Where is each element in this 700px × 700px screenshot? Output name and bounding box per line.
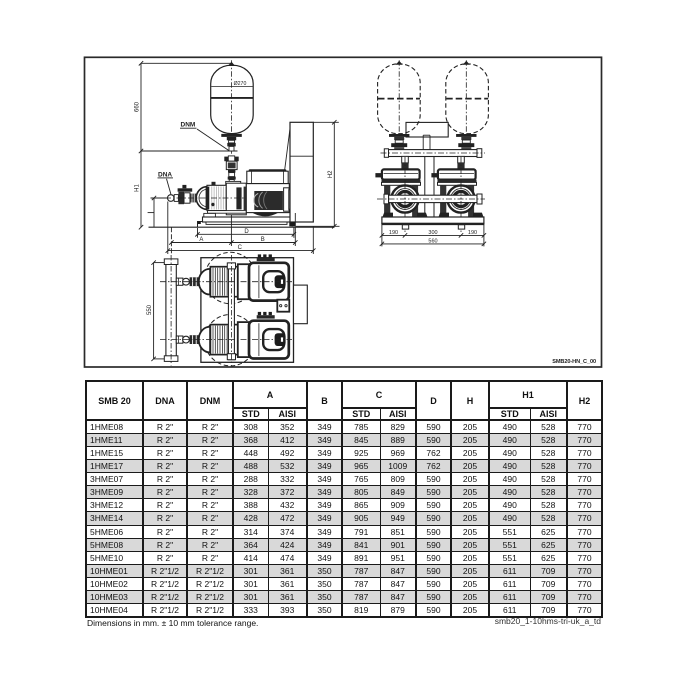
svg-text:C: C [238,245,243,251]
svg-text:DNA: DNA [158,171,172,178]
svg-text:190: 190 [389,230,398,236]
svg-text:Ø270: Ø270 [234,81,247,87]
svg-text:550: 550 [147,304,153,315]
svg-text:560: 560 [428,239,437,245]
svg-text:190: 190 [468,230,477,236]
svg-text:660: 660 [135,101,141,112]
svg-text:H1: H1 [135,184,141,192]
svg-text:D: D [244,229,249,235]
svg-text:SMB20-HN_C_00: SMB20-HN_C_00 [552,359,596,365]
svg-text:A: A [199,237,203,243]
svg-text:DNM: DNM [181,122,196,129]
svg-text:B: B [261,237,265,243]
svg-text:H2: H2 [328,170,334,178]
svg-text:300: 300 [428,230,437,236]
